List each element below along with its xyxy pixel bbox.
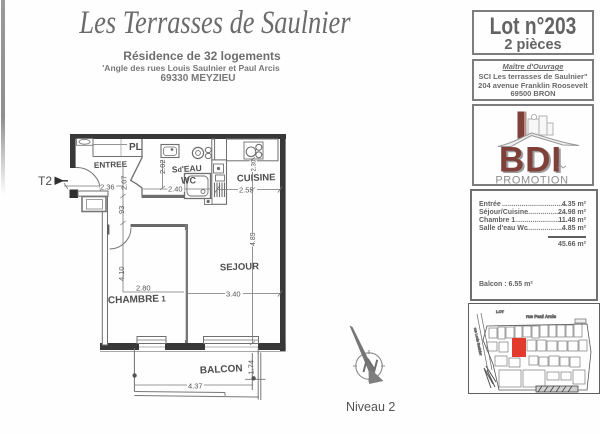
svg-text:4.89: 4.89: [250, 232, 257, 246]
svg-text:rue Paul Arcis: rue Paul Arcis: [526, 314, 557, 319]
svg-text:2.40: 2.40: [168, 185, 183, 194]
svg-text:4.10: 4.10: [117, 266, 126, 281]
svg-text:PROMOTION: PROMOTION: [495, 175, 568, 185]
svg-text:2.30: 2.30: [251, 159, 257, 171]
svg-text:rue Louis Saulnier: rue Louis Saulnier: [473, 327, 483, 356]
svg-text:3.40: 3.40: [226, 290, 241, 299]
svg-text:Sd'EAU: Sd'EAU: [172, 163, 202, 175]
svg-text:4.37: 4.37: [188, 382, 203, 391]
svg-text:2.07: 2.07: [120, 175, 129, 190]
svg-text:1.74: 1.74: [247, 360, 256, 375]
svg-text:2.80: 2.80: [136, 284, 151, 293]
svg-text:2.36: 2.36: [100, 183, 115, 192]
svg-text:SEJOUR: SEJOUR: [220, 261, 260, 273]
svg-text:2.02: 2.02: [158, 159, 167, 174]
svg-text:CHAMBRE 1: CHAMBRE 1: [108, 293, 167, 306]
svg-text:BALCON: BALCON: [200, 363, 243, 376]
svg-text:PL: PL: [129, 142, 142, 153]
svg-text:93: 93: [117, 206, 126, 214]
svg-text:T2: T2: [38, 174, 52, 188]
svg-text:CUISINE: CUISINE: [237, 172, 276, 184]
svg-text:Niveau 2: Niveau 2: [346, 400, 395, 414]
svg-text:LOT: LOT: [496, 309, 505, 314]
